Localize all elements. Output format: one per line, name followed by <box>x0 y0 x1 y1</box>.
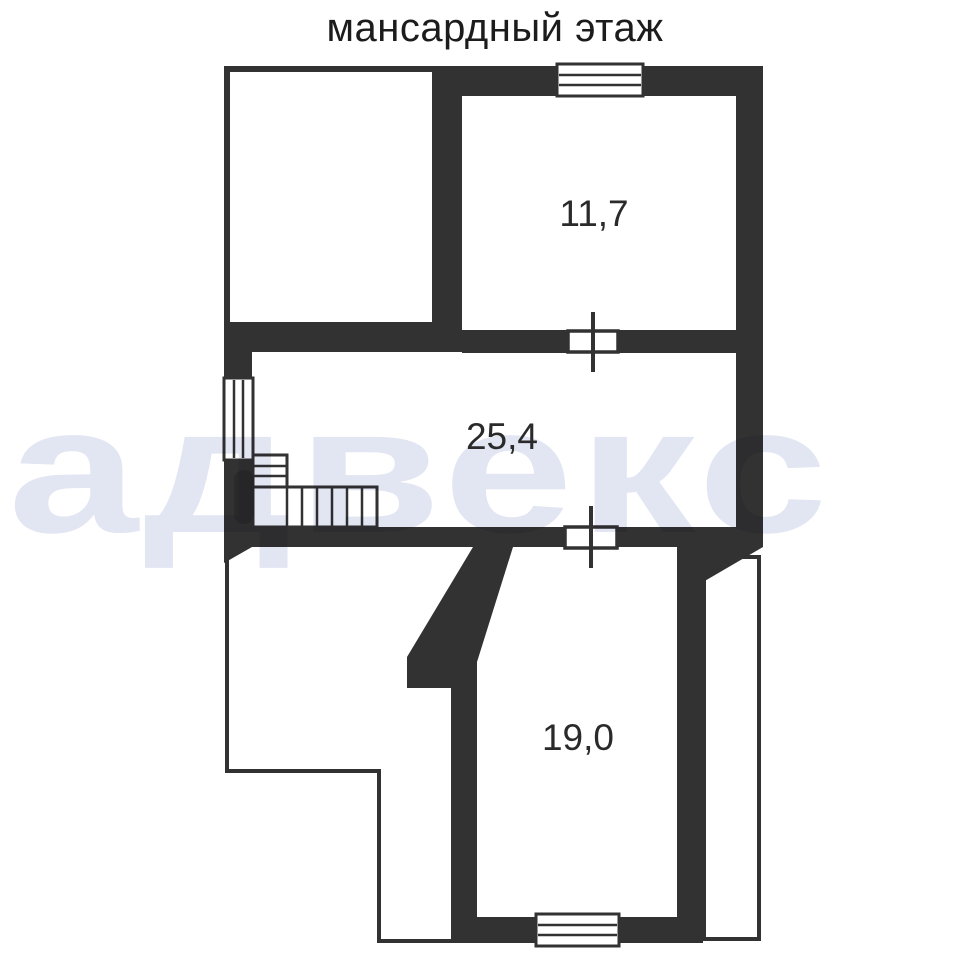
terrace-left-outline <box>227 549 451 941</box>
terrace-right-outline <box>704 557 759 939</box>
window-symbol-left <box>224 378 253 460</box>
window-symbol-bottom <box>536 914 619 946</box>
stairs <box>234 455 377 527</box>
window-symbol-top <box>557 64 643 96</box>
room-area-label-19-0: 19,0 <box>518 717 638 759</box>
floor-plan-drawing <box>0 0 961 960</box>
door-symbol-lower <box>565 506 617 568</box>
room-area-label-25-4: 25,4 <box>442 416 562 458</box>
door-symbol-upper <box>568 312 618 372</box>
room-area-label-11-7: 11,7 <box>534 193 654 235</box>
floor-plan-page: мансардный этаж <box>0 0 961 960</box>
door-leaf <box>234 470 254 524</box>
